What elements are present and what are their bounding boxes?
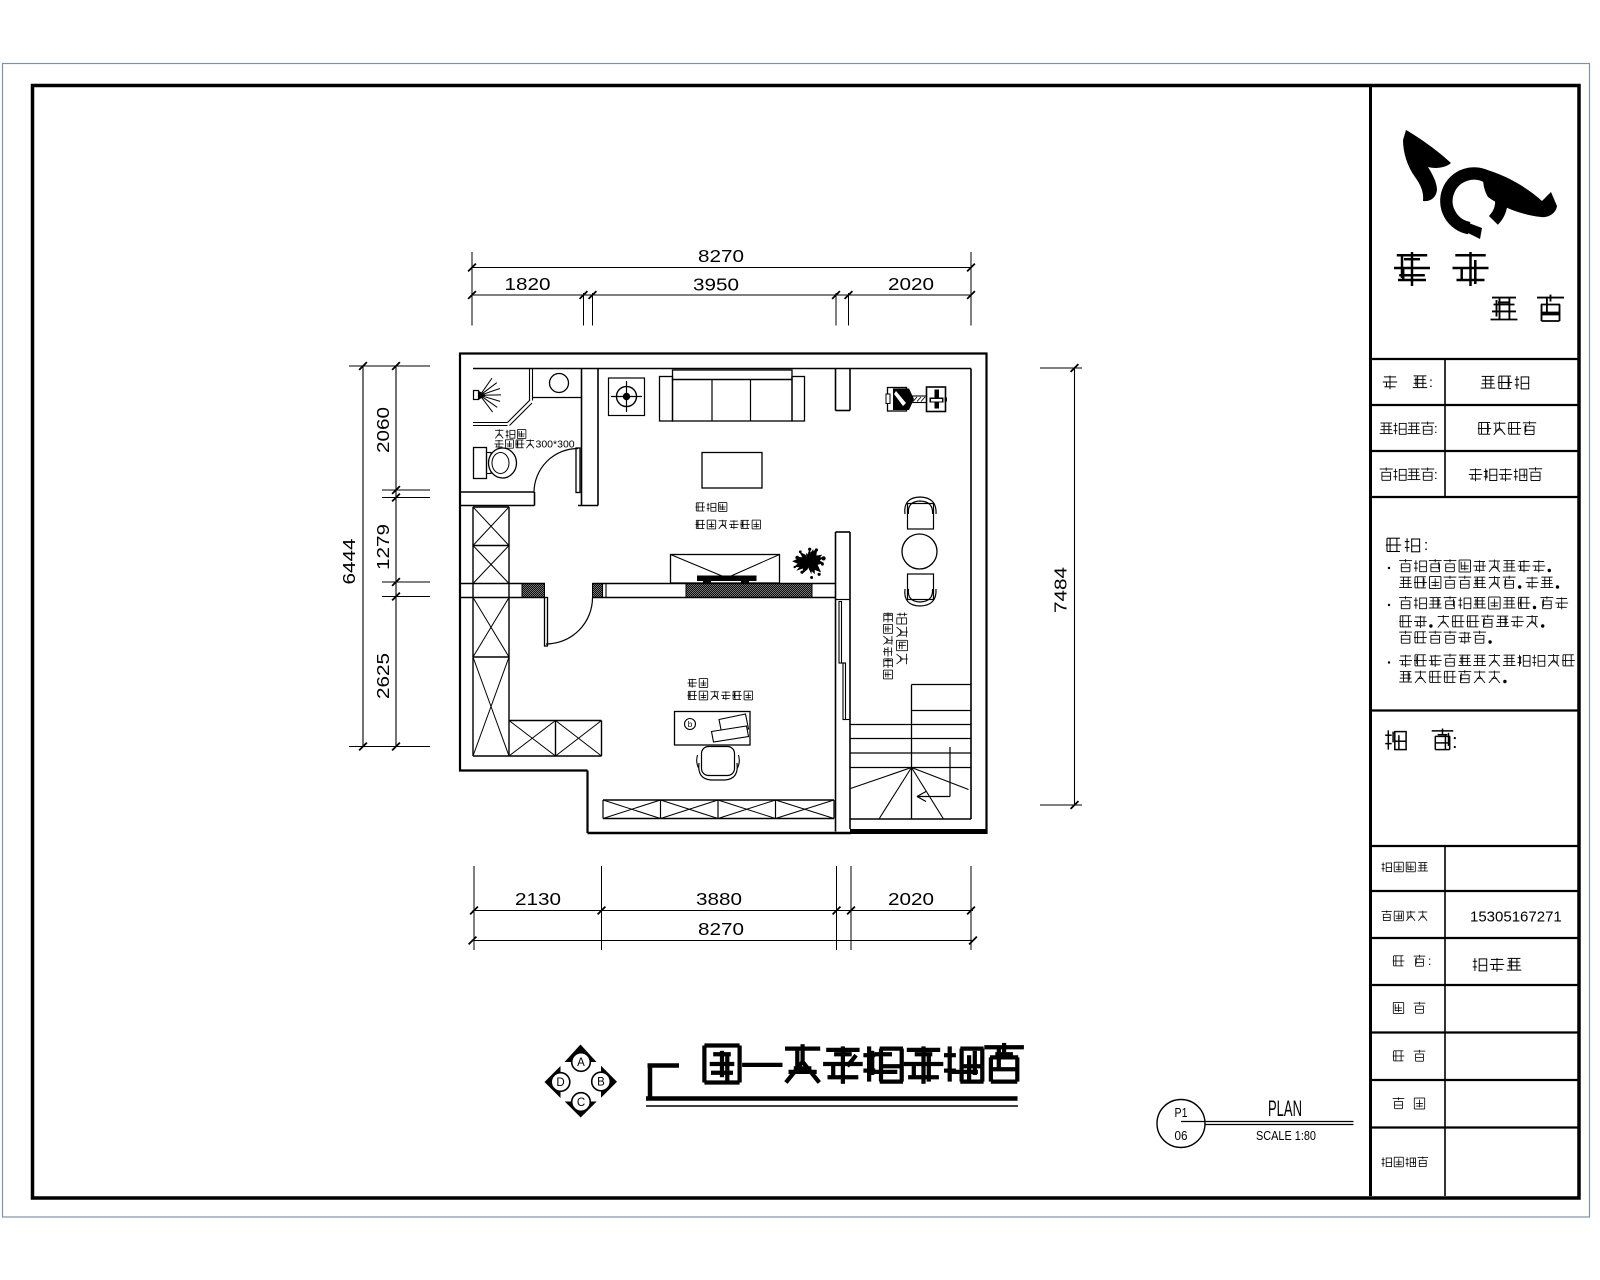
- svg-text::: :: [1428, 954, 1431, 968]
- svg-text:SCALE 1:80: SCALE 1:80: [1256, 1128, 1316, 1143]
- svg-text:1820: 1820: [505, 274, 551, 294]
- svg-text::: :: [1452, 731, 1458, 753]
- svg-text:2130: 2130: [515, 889, 561, 909]
- svg-text:1279: 1279: [373, 524, 393, 570]
- svg-text:6444: 6444: [339, 538, 359, 584]
- svg-text:8270: 8270: [698, 246, 744, 266]
- svg-text:C: C: [577, 1097, 585, 1109]
- svg-text:8270: 8270: [698, 919, 744, 939]
- svg-text:D: D: [556, 1077, 564, 1089]
- svg-text::: :: [1434, 467, 1438, 482]
- svg-text:7484: 7484: [1051, 567, 1071, 613]
- svg-text:B: B: [597, 1077, 605, 1089]
- svg-text:2020: 2020: [888, 889, 934, 909]
- svg-text::: :: [1424, 537, 1428, 554]
- svg-text:b: b: [688, 720, 693, 729]
- svg-text:PLAN: PLAN: [1268, 1096, 1302, 1121]
- svg-text::: :: [1429, 374, 1433, 390]
- svg-text:2625: 2625: [373, 653, 393, 699]
- svg-text:3950: 3950: [693, 275, 739, 295]
- svg-text:300*300: 300*300: [536, 439, 575, 451]
- svg-text:P1: P1: [1175, 1105, 1188, 1120]
- svg-text:06: 06: [1175, 1128, 1188, 1143]
- svg-text::: :: [1434, 421, 1438, 436]
- svg-text:2020: 2020: [888, 274, 934, 294]
- svg-text:3880: 3880: [696, 889, 742, 909]
- svg-text:A: A: [577, 1057, 585, 1069]
- svg-text:15305167271: 15305167271: [1470, 909, 1562, 926]
- svg-text:2060: 2060: [373, 407, 393, 453]
